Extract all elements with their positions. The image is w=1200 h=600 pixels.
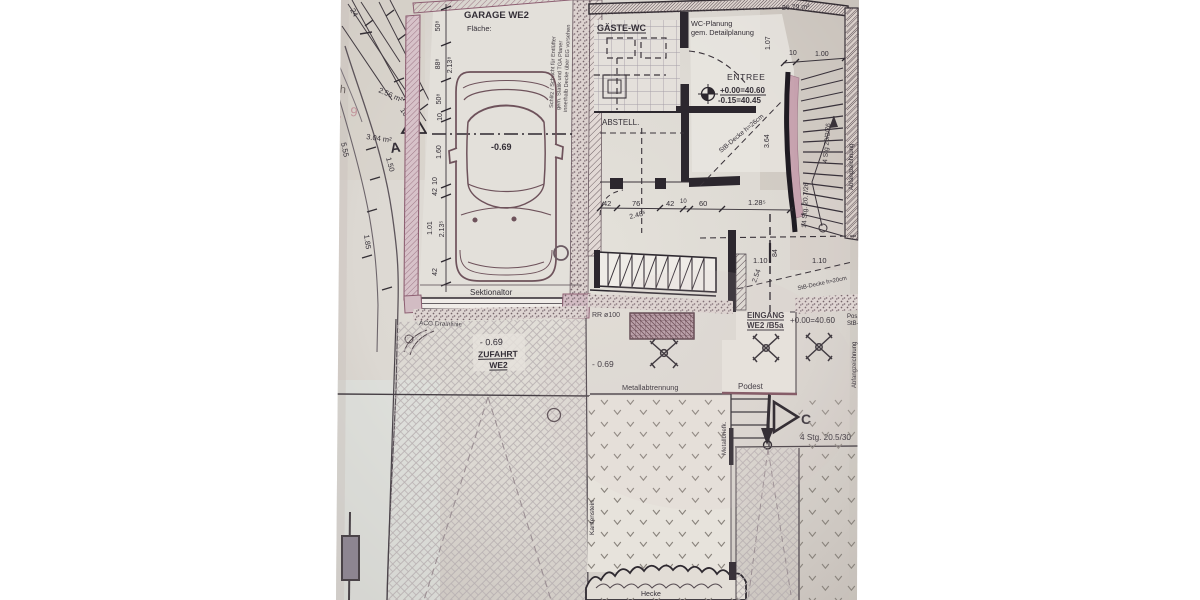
- svg-text:ABSTELL.: ABSTELL.: [602, 118, 639, 127]
- svg-text:1.01: 1.01: [427, 221, 434, 235]
- svg-text:Kantenstein: Kantenstein: [589, 500, 596, 535]
- svg-text:10: 10: [432, 177, 439, 185]
- svg-text:Pos.: Pos.: [847, 314, 859, 320]
- svg-text:10: 10: [437, 113, 444, 121]
- svg-text:1.10: 1.10: [753, 256, 768, 265]
- svg-text:WE2: WE2: [489, 360, 508, 370]
- svg-text:1.07: 1.07: [765, 36, 772, 50]
- svg-text:1.10: 1.10: [812, 256, 827, 265]
- svg-text:GÄSTE-WC: GÄSTE-WC: [597, 23, 646, 33]
- svg-text:76: 76: [632, 199, 640, 208]
- svg-text:42: 42: [432, 188, 439, 196]
- svg-text:Fläche:: Fläche:: [467, 24, 492, 33]
- svg-text:StB-: StB-: [847, 321, 859, 327]
- svg-text:50⁸: 50⁸: [435, 21, 442, 32]
- svg-text:1.60: 1.60: [436, 145, 443, 159]
- svg-text:- 0.69: - 0.69: [480, 337, 503, 347]
- svg-text:42: 42: [432, 268, 439, 276]
- svg-text:42: 42: [603, 199, 611, 208]
- svg-text:2.13⁸: 2.13⁸: [447, 57, 454, 74]
- svg-text:2.13⁵: 2.13⁵: [439, 221, 446, 238]
- svg-text:84: 84: [772, 249, 779, 257]
- svg-text:10: 10: [680, 199, 687, 205]
- svg-text:ZUFAHRT: ZUFAHRT: [478, 349, 519, 360]
- svg-text:1.00: 1.00: [815, 51, 829, 58]
- svg-text:WC-Planung: WC-Planung: [691, 19, 732, 28]
- svg-text:-0.15=40.45: -0.15=40.45: [718, 96, 761, 105]
- svg-text:1.28⁵: 1.28⁵: [748, 198, 766, 207]
- svg-text:+0.00=40.60: +0.00=40.60: [720, 86, 765, 95]
- svg-text:GARAGE WE2: GARAGE WE2: [464, 10, 529, 21]
- svg-text:9: 9: [350, 104, 358, 119]
- svg-text:88⁸: 88⁸: [435, 59, 442, 70]
- svg-text:50⁸: 50⁸: [436, 94, 443, 105]
- svg-text:Abfangzeichnung: Abfangzeichnung: [849, 144, 855, 190]
- svg-text:26.79 m²: 26.79 m²: [782, 4, 811, 12]
- svg-text:10: 10: [789, 50, 797, 57]
- svg-text:-0.69: -0.69: [491, 142, 512, 152]
- svg-text:ENTREE: ENTREE: [727, 72, 765, 82]
- svg-text:3.64: 3.64: [764, 134, 771, 148]
- svg-text:Sektionaltor: Sektionaltor: [470, 288, 513, 297]
- svg-text:60: 60: [699, 199, 707, 208]
- svg-text:42: 42: [666, 199, 674, 208]
- svg-text:gem. Detailplanung: gem. Detailplanung: [691, 28, 754, 37]
